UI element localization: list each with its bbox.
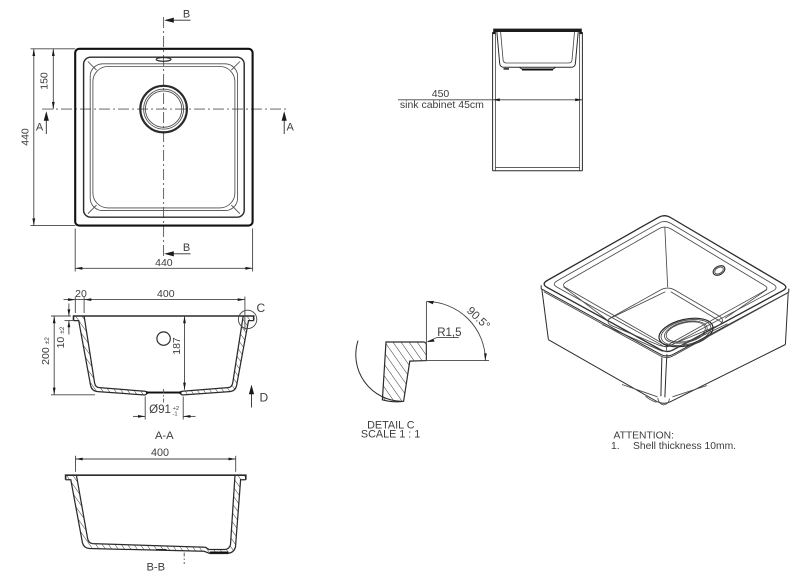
svg-text:sink cabinet 45cm: sink cabinet 45cm — [400, 99, 484, 111]
svg-text:1.: 1. — [611, 441, 620, 452]
svg-text:400: 400 — [157, 288, 175, 300]
svg-text:B-B: B-B — [146, 562, 165, 574]
svg-text:150: 150 — [39, 72, 51, 90]
svg-text:D: D — [260, 391, 269, 405]
svg-text:B: B — [183, 8, 190, 20]
svg-text:450: 450 — [432, 88, 450, 100]
svg-text:20: 20 — [75, 288, 87, 300]
svg-text:C: C — [257, 301, 266, 315]
svg-text:440: 440 — [19, 128, 31, 146]
svg-text:Shell thickness 10mm.: Shell thickness 10mm. — [633, 441, 736, 452]
svg-text:-1: -1 — [173, 412, 178, 418]
svg-text:A-A: A-A — [155, 430, 174, 442]
svg-text:A: A — [36, 122, 44, 134]
svg-text:440: 440 — [155, 257, 173, 269]
svg-text:Ø91: Ø91 — [149, 404, 171, 416]
svg-text:SCALE 1 : 1: SCALE 1 : 1 — [361, 428, 420, 440]
svg-text:R1,5: R1,5 — [437, 327, 461, 339]
svg-text:187: 187 — [171, 337, 183, 355]
svg-text:B: B — [183, 242, 190, 254]
svg-text:A: A — [287, 122, 295, 134]
svg-text:400: 400 — [151, 447, 169, 459]
